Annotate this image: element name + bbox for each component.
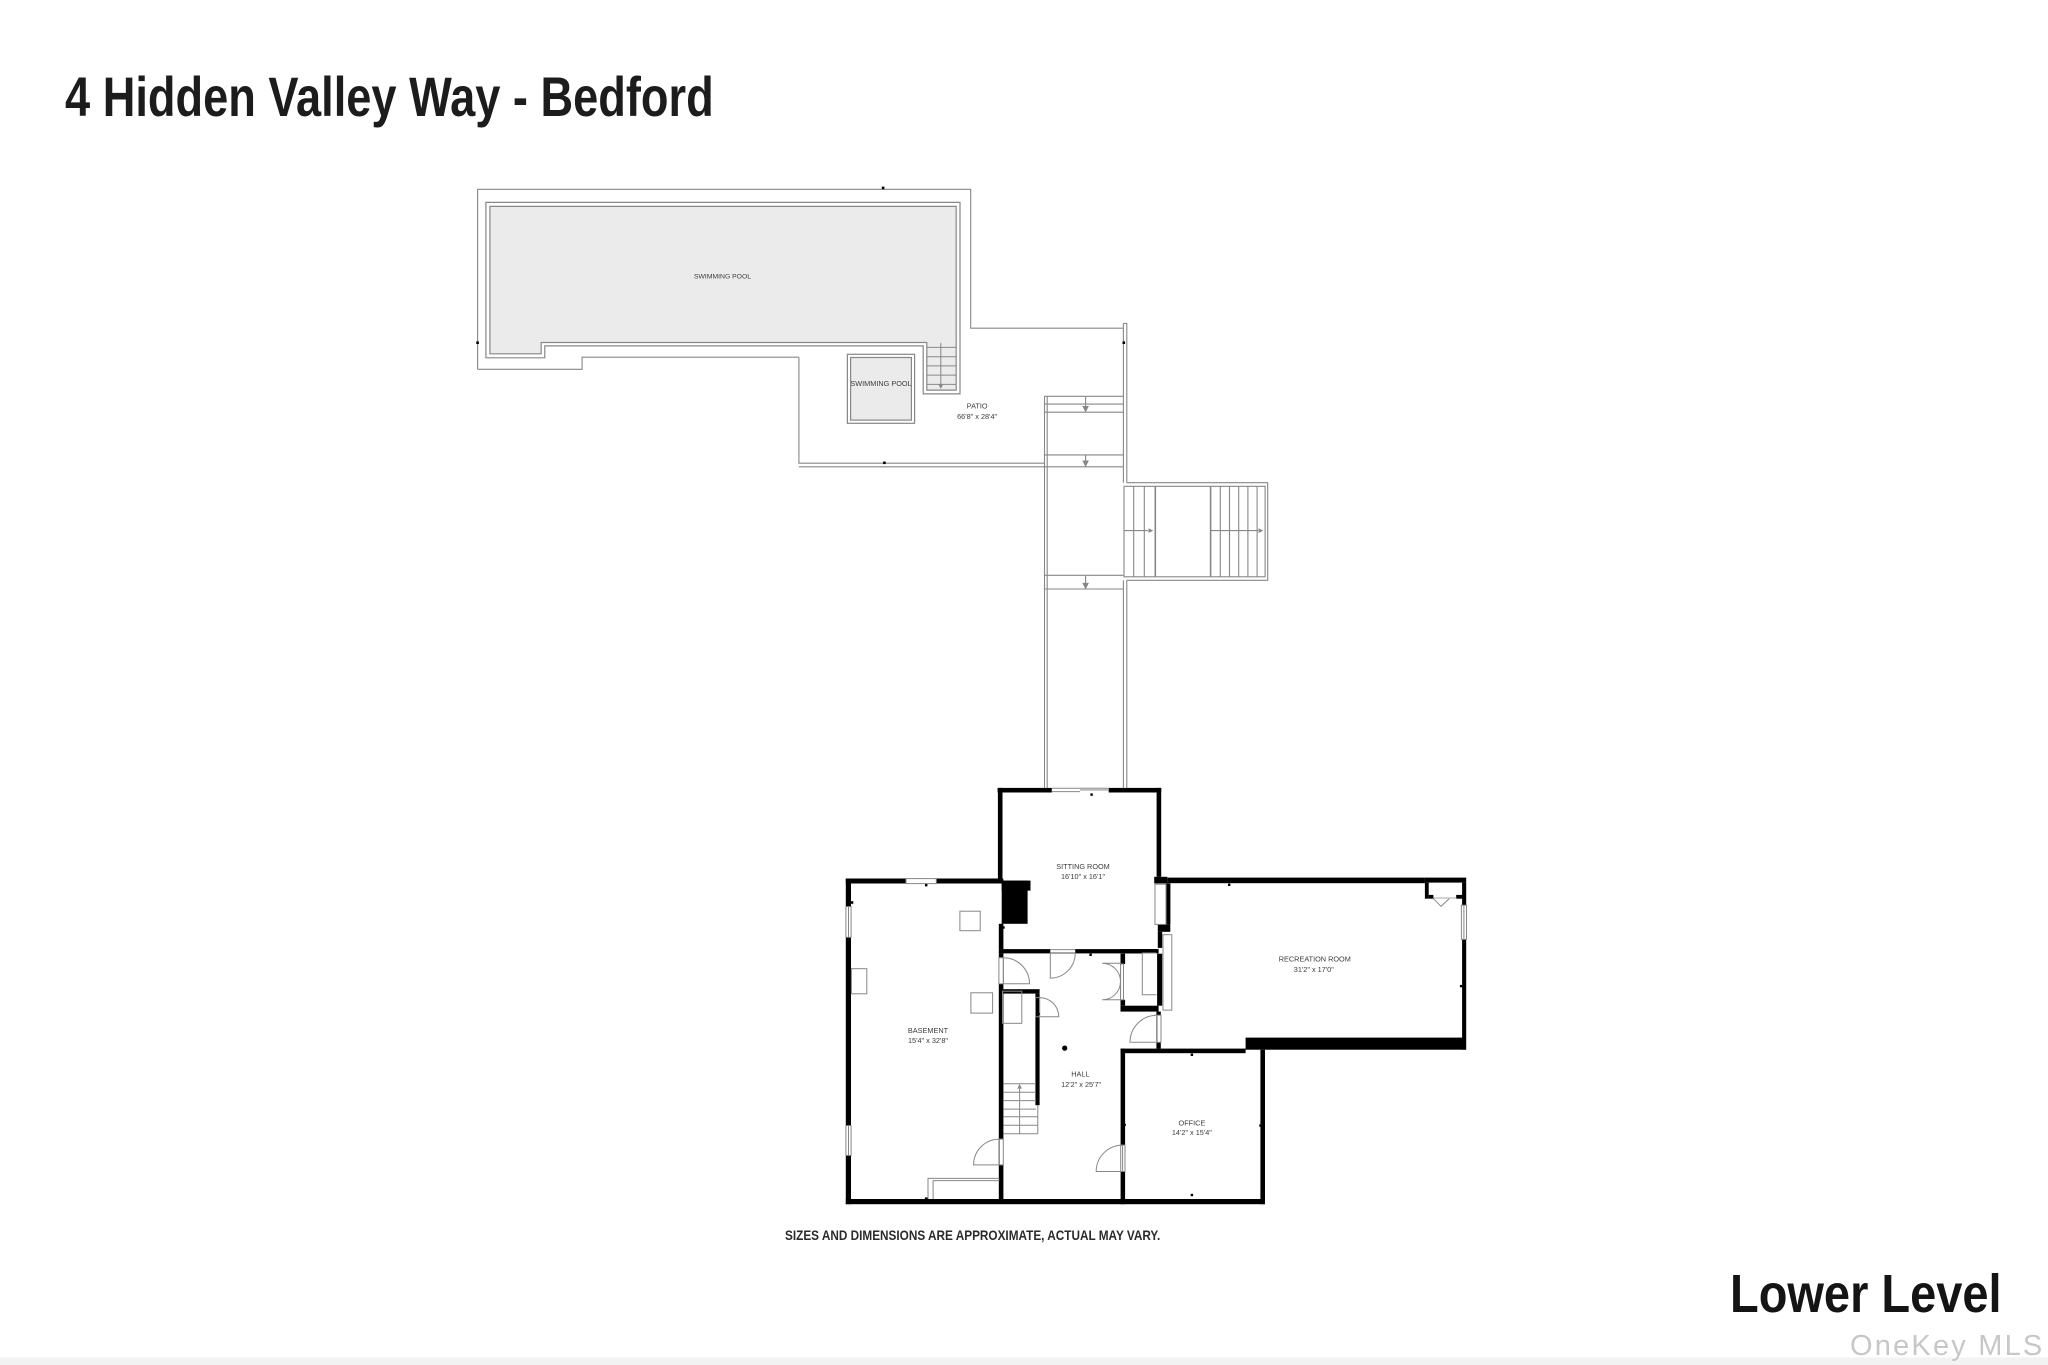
svg-text:HALL: HALL [1071,1070,1089,1079]
svg-text:SITTING ROOM: SITTING ROOM [1056,862,1110,871]
svg-text:BASEMENT: BASEMENT [908,1026,949,1035]
svg-text:14'2" x 15'4": 14'2" x 15'4" [1172,1128,1212,1137]
svg-text:SWIMMING POOL: SWIMMING POOL [850,379,911,388]
svg-text:12'2" x 25'7": 12'2" x 25'7" [1061,1080,1101,1089]
svg-text:15'4" x 32'8": 15'4" x 32'8" [908,1036,948,1045]
svg-text:31'2" x 17'0": 31'2" x 17'0" [1294,965,1334,974]
svg-text:OFFICE: OFFICE [1179,1119,1206,1128]
svg-text:66'8" x 28'4": 66'8" x 28'4" [957,412,997,421]
svg-text:16'10" x 16'1": 16'10" x 16'1" [1061,872,1105,881]
svg-text:SWIMMING POOL: SWIMMING POOL [694,274,751,281]
svg-text:RECREATION ROOM: RECREATION ROOM [1279,955,1351,964]
svg-text:PATIO: PATIO [967,401,988,410]
